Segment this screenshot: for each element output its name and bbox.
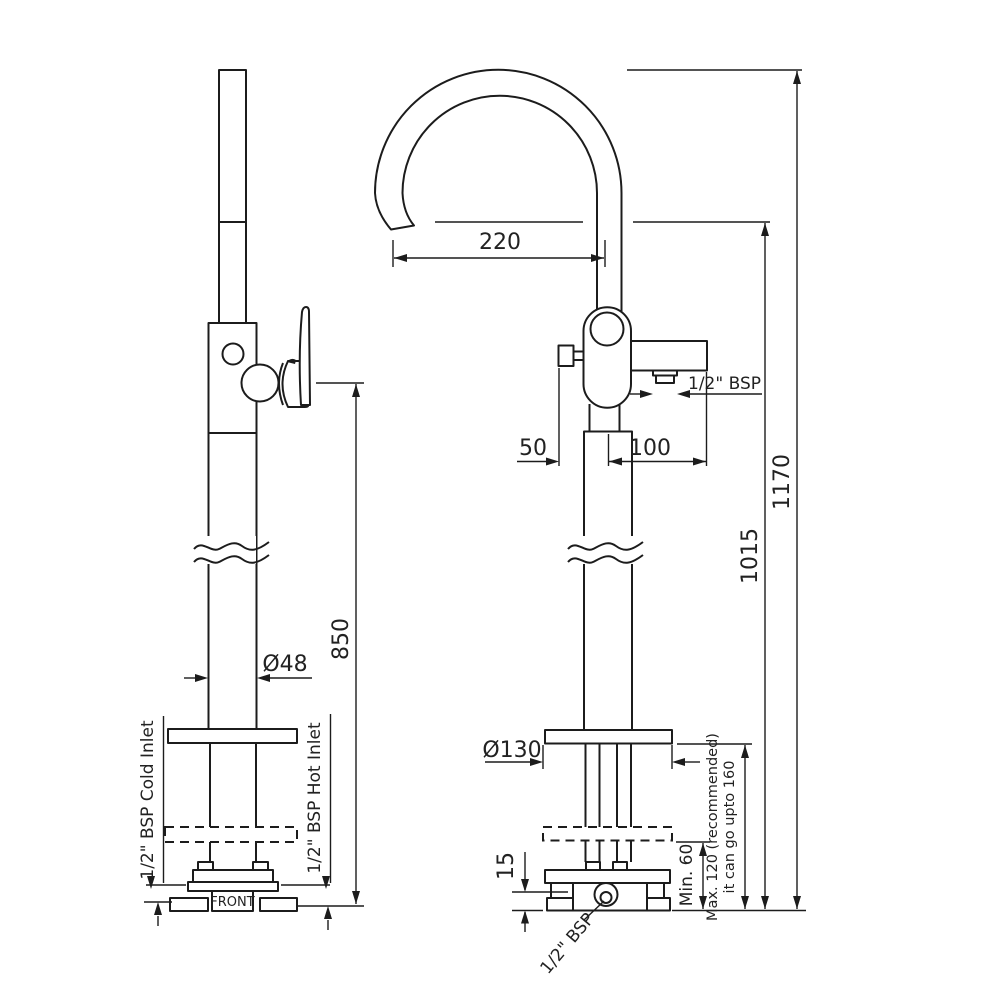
spout-connection-label: 1/2" BSP (688, 374, 761, 394)
dim-850-label: 850 (329, 618, 354, 660)
dim-min60-label: Min. 60 (677, 844, 697, 907)
dim-max120-label-line1: Max. 120 (recommended) (705, 733, 721, 921)
dim-220-label: 220 (479, 230, 521, 255)
dim-1015-label: 1015 (738, 528, 763, 584)
front-base-nub-left (586, 862, 600, 870)
dim-max120-label-line2: it can go upto 160 (722, 761, 738, 894)
dim-130-label: Ø130 (482, 738, 541, 763)
side-view: FRONT (165, 70, 310, 911)
front-gooseneck-spout (375, 70, 622, 311)
base-connection-label: 1/2" BSP (537, 909, 599, 978)
side-base-foot-right (260, 898, 297, 911)
side-handle-lever (300, 307, 310, 405)
side-base-plate-upper (193, 870, 273, 882)
side-base-plate-lower (188, 882, 278, 891)
technical-drawing-page: FRONT (0, 0, 1000, 1000)
dim-50-label: 50 (519, 436, 547, 461)
front-fitting-body (656, 376, 674, 384)
side-adjustable-flange-dashed (165, 827, 297, 842)
front-base-connection-inner (601, 892, 612, 903)
front-marking-label: FRONT (210, 895, 254, 910)
faucet-dimension-drawing: FRONT (0, 0, 1000, 1000)
front-adjustable-flange-dashed (543, 827, 672, 841)
side-cover-flange (168, 729, 297, 743)
cold-inlet-label: 1/2" BSP Cold Inlet (138, 720, 158, 880)
side-handle-ball (242, 365, 279, 402)
side-base-foot-left (170, 898, 208, 911)
side-base-nub-left (198, 862, 213, 870)
dim-100-label: 100 (629, 436, 671, 461)
side-body-screw (223, 344, 244, 365)
front-diverter-knob (559, 346, 574, 367)
side-spout-pipe (219, 70, 246, 323)
front-spout-arm (631, 341, 707, 371)
front-pivot-circle (591, 313, 624, 346)
front-cover-flange (545, 730, 672, 744)
front-knob-stem (574, 352, 584, 361)
front-view (375, 70, 707, 911)
hot-inlet-label: 1/2" BSP Hot Inlet (305, 722, 325, 874)
dim-15-label: 15 (494, 852, 519, 880)
dim-1170-label: 1170 (770, 454, 795, 510)
dim-48-label: Ø48 (262, 652, 307, 677)
side-riser-tube (209, 433, 257, 729)
front-base-plate-upper (545, 870, 670, 883)
side-base-nub-right (253, 862, 268, 870)
front-base-nub-right (613, 862, 627, 870)
front-riser-tube (584, 432, 632, 731)
